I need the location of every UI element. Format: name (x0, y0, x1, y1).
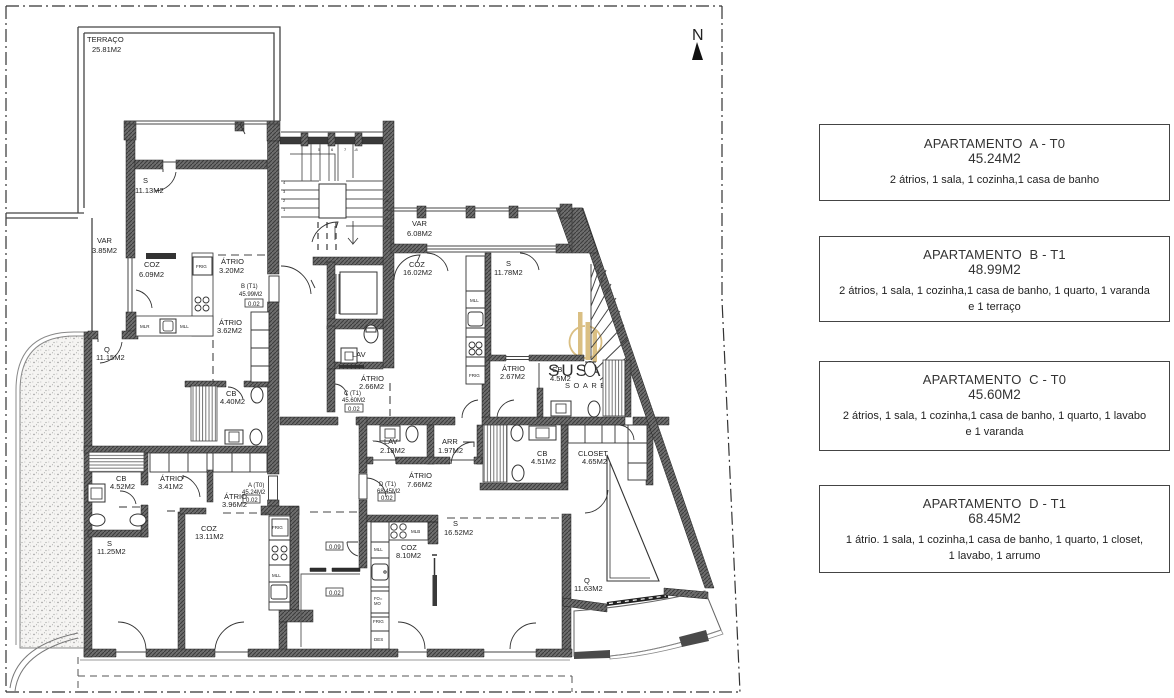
svg-text:0.02: 0.02 (248, 302, 260, 308)
svg-text:4.40M2: 4.40M2 (220, 397, 245, 406)
svg-text:CB: CB (552, 365, 562, 374)
svg-text:0.09: 0.09 (329, 545, 341, 551)
svg-text:ÁTRIO: ÁTRIO (409, 471, 432, 480)
svg-text:6: 6 (331, 147, 334, 152)
svg-text:4.5M2: 4.5M2 (550, 374, 571, 383)
svg-text:7: 7 (344, 147, 347, 152)
svg-text:3.85M2: 3.85M2 (92, 246, 117, 255)
svg-text:11.15M2: 11.15M2 (96, 353, 125, 362)
svg-text:4.52M2: 4.52M2 (110, 482, 135, 491)
svg-text:S: S (453, 519, 458, 528)
svg-text:MLL: MLL (180, 324, 189, 329)
svg-text:S: S (506, 259, 511, 268)
svg-text:LAV: LAV (384, 437, 398, 446)
svg-text:ÁTRIO: ÁTRIO (221, 257, 244, 266)
svg-text:FRIG: FRIG (373, 619, 384, 624)
svg-text:1.97M2: 1.97M2 (438, 446, 463, 455)
svg-text:11.13M2: 11.13M2 (135, 186, 164, 195)
svg-text:N: N (692, 27, 704, 44)
svg-text:MLL: MLL (470, 298, 479, 303)
svg-text:C (T1): C (T1) (344, 391, 361, 397)
svg-text:45.99M2: 45.99M2 (239, 292, 263, 298)
svg-text:FRIG: FRIG (272, 525, 283, 530)
svg-text:6.08M2: 6.08M2 (407, 229, 432, 238)
svg-text:11.63M2: 11.63M2 (574, 584, 603, 593)
svg-text:MLR: MLR (140, 324, 150, 329)
svg-text:LAV: LAV (352, 350, 366, 359)
svg-text:MO: MO (374, 601, 381, 606)
svg-text:0.02: 0.02 (381, 496, 393, 502)
svg-text:4.65M2: 4.65M2 (582, 457, 607, 466)
svg-text:2.66M2: 2.66M2 (359, 382, 384, 391)
svg-text:8.10M2: 8.10M2 (396, 551, 421, 560)
svg-text:0.02: 0.02 (329, 591, 341, 597)
svg-text:FRIG: FRIG (196, 264, 207, 269)
svg-text:0.02: 0.02 (348, 407, 360, 413)
svg-text:11.25M2: 11.25M2 (97, 547, 126, 556)
svg-text:5: 5 (318, 147, 321, 152)
svg-text:TERRAÇO: TERRAÇO (87, 35, 124, 44)
svg-text:3.41M2: 3.41M2 (158, 482, 183, 491)
svg-text:3.62M2: 3.62M2 (217, 326, 242, 335)
svg-text:MLL: MLL (272, 573, 281, 578)
svg-text:4.51M2: 4.51M2 (531, 457, 556, 466)
svg-text:VAR: VAR (412, 219, 427, 228)
svg-text:13.11M2: 13.11M2 (195, 532, 224, 541)
svg-text:MLB: MLB (411, 529, 420, 534)
svg-text:S: S (143, 176, 148, 185)
svg-text:B (T1): B (T1) (241, 284, 258, 290)
svg-text:COZ: COZ (144, 260, 160, 269)
svg-text:25.81M2: 25.81M2 (92, 45, 121, 54)
svg-text:A (T0): A (T0) (248, 483, 264, 489)
svg-text:45.60M2: 45.60M2 (342, 398, 366, 404)
svg-text:VAR: VAR (97, 236, 112, 245)
svg-text:FRIG: FRIG (469, 373, 480, 378)
svg-text:11.78M2: 11.78M2 (494, 268, 523, 277)
svg-text:0.02: 0.02 (246, 498, 258, 504)
svg-text:D (T1): D (T1) (379, 482, 396, 488)
svg-text:3.20M2: 3.20M2 (219, 266, 244, 275)
svg-text:ARR: ARR (442, 437, 458, 446)
svg-text:2.67M2: 2.67M2 (500, 372, 525, 381)
svg-text:2.18M2: 2.18M2 (380, 446, 405, 455)
svg-text:7.66M2: 7.66M2 (407, 480, 432, 489)
svg-text:16.52M2: 16.52M2 (444, 528, 473, 537)
svg-text:-8: -8 (354, 147, 358, 152)
svg-text:DES: DES (374, 637, 383, 642)
svg-text:MLL: MLL (374, 547, 383, 552)
svg-text:68.45M2: 68.45M2 (377, 489, 401, 495)
svg-text:16.02M2: 16.02M2 (403, 268, 432, 277)
svg-text:6.09M2: 6.09M2 (139, 270, 164, 279)
